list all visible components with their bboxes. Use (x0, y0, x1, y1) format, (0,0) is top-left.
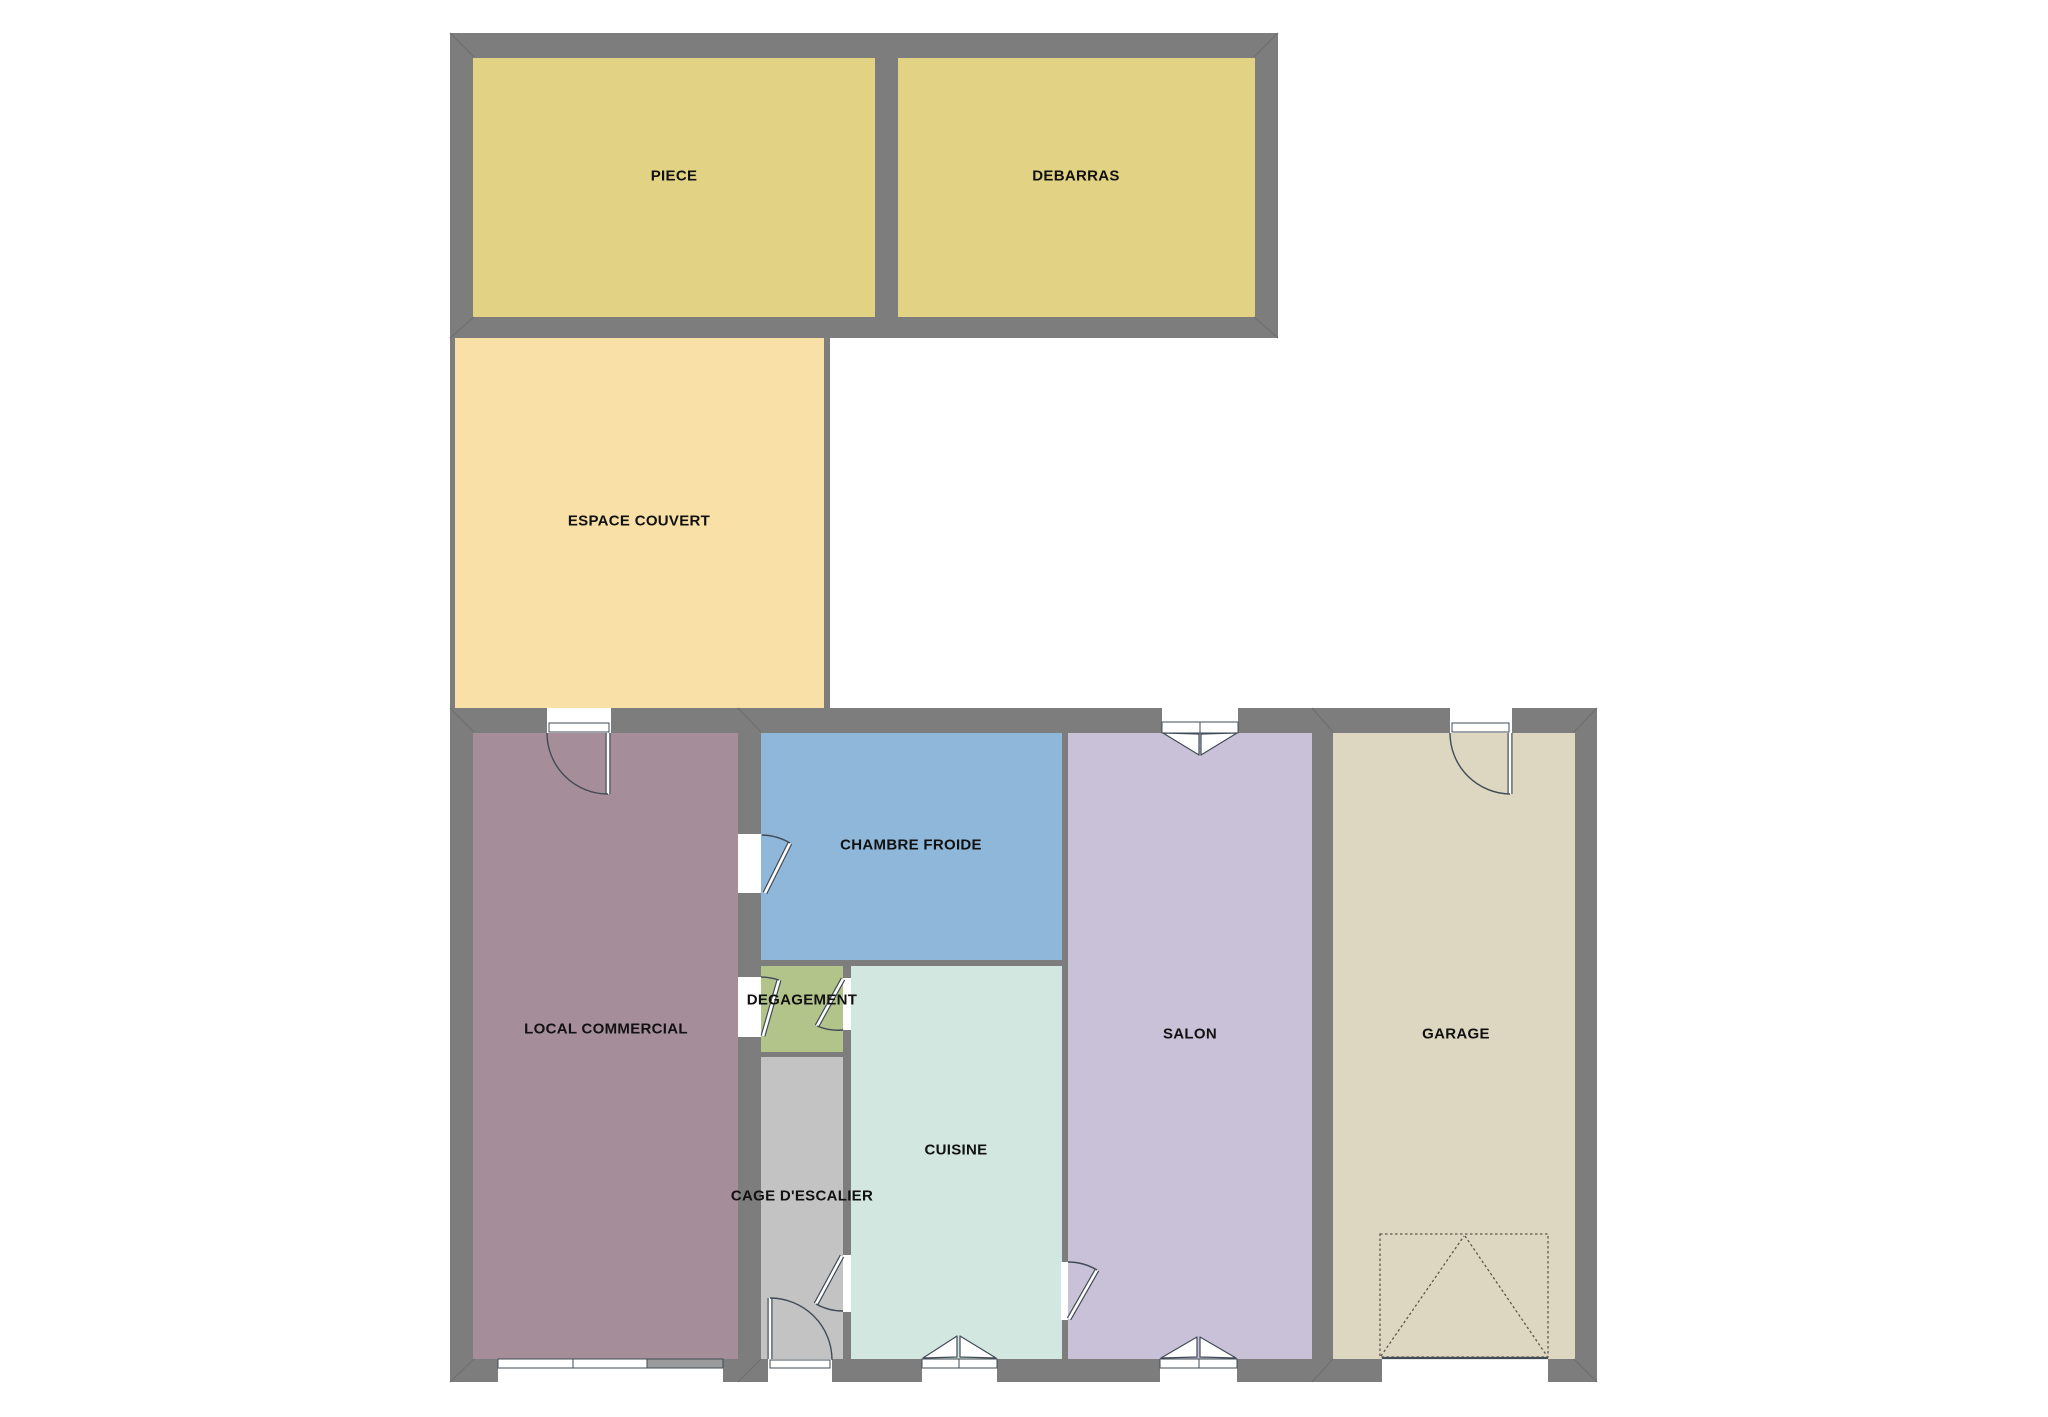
room-cuisine (851, 966, 1062, 1359)
room-cage-escalier (761, 1057, 843, 1359)
room-espace-couvert (455, 338, 824, 708)
opening-degagement-left-door (738, 977, 761, 1037)
room-debarras (898, 58, 1255, 317)
room-garage (1333, 733, 1575, 1359)
local-commercial-entry-frame (549, 723, 609, 732)
cage-exit-frame (770, 1360, 830, 1368)
opening-garage-door-opening (1382, 1359, 1548, 1382)
floor-plan-canvas: PIECE DEBARRAS ESPACE COUVERT LOCAL COMM… (0, 0, 2048, 1417)
storefront-frame-panel (647, 1359, 723, 1368)
room-piece (473, 58, 875, 317)
opening-chambre-froide-door (738, 834, 761, 893)
opening-cuisine-salon-door (1061, 1262, 1068, 1320)
room-chambre-froide (761, 733, 1062, 960)
room-salon (1068, 733, 1312, 1359)
opening-cage-interior-door (843, 1255, 851, 1312)
opening-degagement-right-door (843, 978, 851, 1030)
garage-entry-frame (1452, 723, 1509, 732)
room-local-commercial (473, 733, 738, 1359)
floor-plan-svg (0, 0, 2048, 1417)
